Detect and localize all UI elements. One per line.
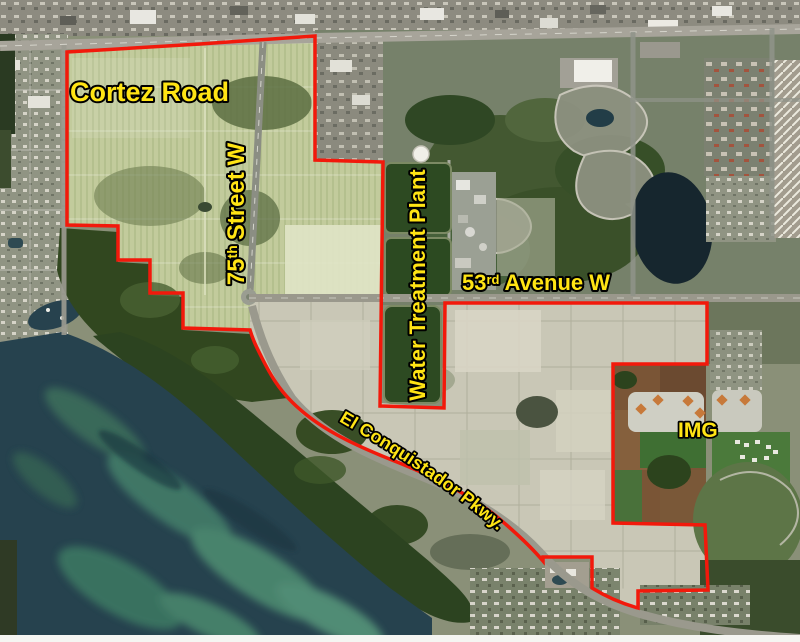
trees-bottom-left-edge — [0, 540, 17, 636]
label-img: IMG — [678, 419, 718, 442]
satellite-canvas: Cortez Road 75thStreet W Water Treatment… — [0, 0, 800, 642]
label-water-treatment-plant: Water Treatment Plant — [405, 169, 430, 401]
condos-red-roofs — [704, 58, 776, 176]
aerial-map: Cortez Road 75thStreet W Water Treatment… — [0, 0, 800, 642]
baseball-complex-east — [712, 390, 762, 432]
farm-pond — [516, 396, 558, 428]
bottom-border — [0, 635, 800, 642]
mobile-home-park — [774, 60, 800, 238]
label-cortez-road: Cortez Road — [70, 77, 229, 107]
trees-left-edge-2 — [0, 130, 11, 188]
label-53rd-avenue: 53rdAvenue W — [462, 270, 610, 295]
wtp-tank — [413, 146, 429, 162]
label-75th-street: 75thStreet W — [223, 143, 250, 286]
